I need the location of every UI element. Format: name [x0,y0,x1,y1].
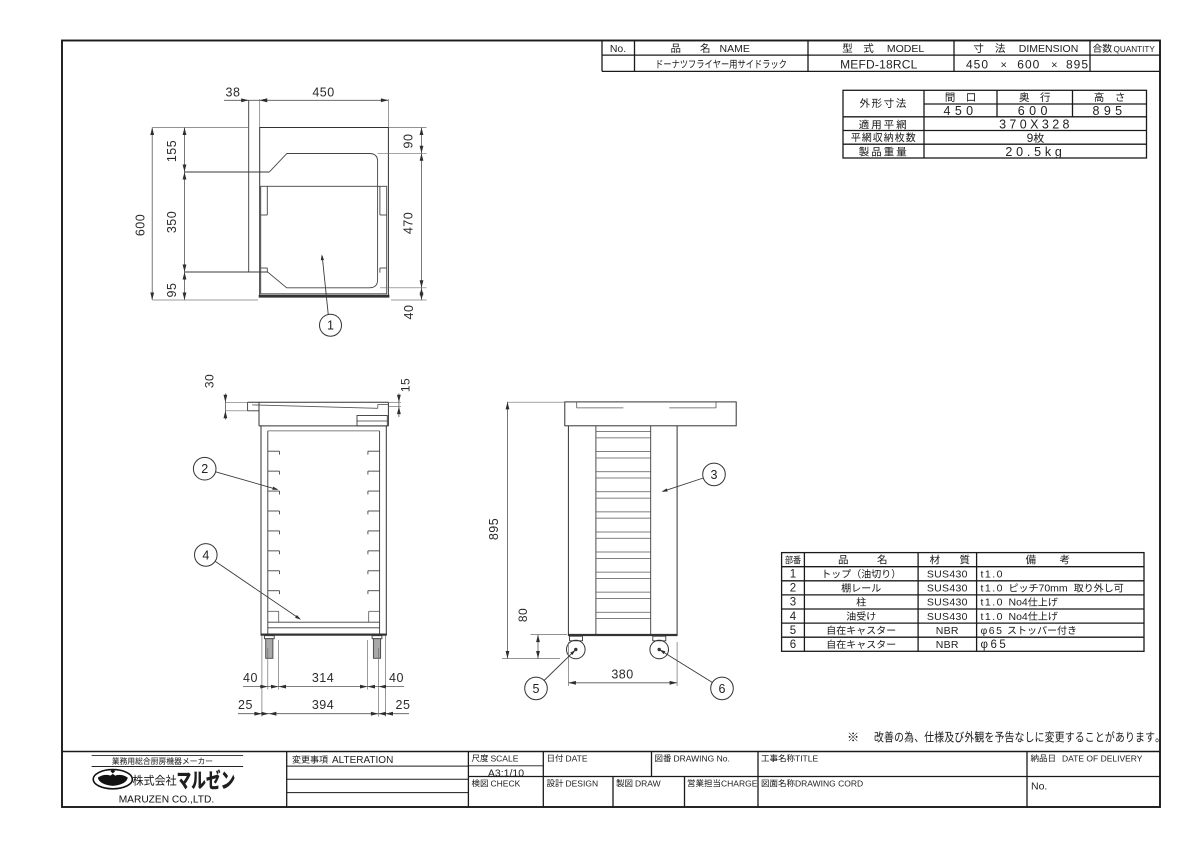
svg-text:40: 40 [402,305,416,320]
svg-text:SCALE: SCALE [491,753,519,763]
svg-text:895: 895 [487,518,501,540]
svg-text:NAME: NAME [720,43,750,55]
svg-text:t1.0: t1.0 [981,569,1005,581]
svg-text:314: 314 [312,671,334,685]
svg-text:DATE OF DELIVERY: DATE OF DELIVERY [1062,753,1143,763]
svg-text:600: 600 [1017,57,1040,71]
svg-text:450: 450 [943,104,977,118]
svg-text:155: 155 [165,140,179,162]
svg-text:SUS430: SUS430 [927,597,968,609]
svg-text:600: 600 [1018,104,1052,118]
svg-text:9: 9 [1027,131,1034,145]
svg-text:MODEL: MODEL [887,43,925,55]
svg-text:20.5kg: 20.5kg [1005,145,1065,159]
svg-text:2: 2 [790,583,796,595]
svg-text:40: 40 [389,671,404,685]
svg-text:5: 5 [533,682,540,696]
svg-text:350: 350 [165,211,179,233]
svg-text:φ65: φ65 [981,639,1009,651]
svg-text:MARUZEN CO.,LTD.: MARUZEN CO.,LTD. [119,794,214,805]
svg-text:No4: No4 [1009,611,1028,623]
svg-text:470: 470 [402,212,416,234]
svg-text:ALTERATION: ALTERATION [332,755,393,766]
svg-text:TITLE: TITLE [795,753,818,763]
svg-text:SUS430: SUS430 [927,569,968,581]
svg-text:2: 2 [201,462,208,476]
svg-text:NBR: NBR [936,625,959,637]
svg-text:QUANTITY: QUANTITY [1114,45,1156,54]
svg-text:No4: No4 [1009,597,1028,609]
svg-text:×: × [1051,59,1057,71]
svg-text:DATE: DATE [566,753,588,763]
svg-text:30: 30 [203,374,217,388]
svg-text:DRAW: DRAW [635,778,661,788]
svg-text:80: 80 [516,608,530,622]
svg-text:t1.0: t1.0 [981,583,1005,595]
svg-text:25: 25 [396,698,411,712]
svg-text:DIMENSION: DIMENSION [1019,43,1079,55]
svg-text:SUS430: SUS430 [927,583,968,595]
svg-text:No.: No. [610,43,626,55]
svg-text:DESIGN: DESIGN [566,778,599,788]
svg-text:6: 6 [719,682,726,696]
svg-text:450: 450 [966,57,989,71]
svg-text:×: × [1000,59,1006,71]
svg-text:25: 25 [238,698,253,712]
svg-text:15: 15 [399,378,413,392]
svg-text:CHECK: CHECK [491,778,521,788]
svg-text:4: 4 [790,611,797,623]
svg-text:5: 5 [790,625,796,637]
svg-text:895: 895 [1092,104,1126,118]
svg-text:t1.0: t1.0 [981,611,1005,623]
svg-text:600: 600 [134,214,148,236]
svg-text:1: 1 [327,319,334,333]
svg-text:40: 40 [243,671,258,685]
svg-text:MEFD-18RCL: MEFD-18RCL [840,57,917,71]
svg-text:1: 1 [790,569,796,581]
svg-text:DRAWING No.: DRAWING No. [674,753,730,763]
svg-text:95: 95 [165,283,179,298]
svg-text:SUS430: SUS430 [927,611,968,623]
svg-text:No.: No. [1031,781,1047,793]
svg-text:4: 4 [202,548,209,562]
svg-text:φ65: φ65 [981,625,1004,637]
svg-text:DRAWING CORD: DRAWING CORD [795,778,863,788]
svg-text:370X328: 370X328 [999,118,1073,132]
svg-text:6: 6 [790,639,796,651]
svg-text:3: 3 [711,468,718,482]
svg-text:70mm: 70mm [1039,583,1068,595]
svg-text:NBR: NBR [936,639,959,651]
svg-text:450: 450 [312,86,334,100]
svg-text:895: 895 [1066,57,1089,71]
svg-text:CHARGE: CHARGE [721,778,758,788]
svg-text:38: 38 [226,86,241,100]
svg-text:3: 3 [790,597,796,609]
svg-text:394: 394 [312,698,334,712]
svg-text:90: 90 [402,134,416,149]
svg-text:t1.0: t1.0 [981,597,1005,609]
svg-text:380: 380 [611,668,633,682]
